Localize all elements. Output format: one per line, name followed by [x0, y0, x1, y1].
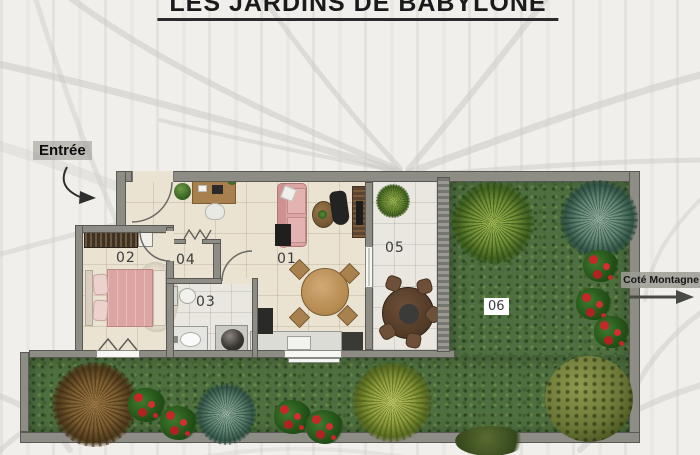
- mountain-side-label: Coté Montagne: [621, 272, 700, 288]
- bathroom-door-opening: [222, 278, 252, 284]
- potted-plant: [174, 183, 191, 200]
- wall-closet-right: [213, 239, 221, 283]
- bed: [85, 268, 167, 328]
- floor-plan-poster: LES JARDINS DE BABYLONE: [0, 0, 700, 455]
- room-label-06-garden: 06: [484, 298, 509, 315]
- wall-bath-right: [252, 278, 258, 358]
- terrace-sliding-door: [365, 246, 373, 288]
- wall-top: [172, 171, 640, 182]
- desk-papers: [198, 185, 207, 192]
- blue-palm: [196, 383, 256, 445]
- entrance-door-opening: [132, 171, 174, 182]
- bed-pillow: [92, 300, 108, 322]
- room-label-03-bathroom: 03: [196, 294, 216, 310]
- tv: [356, 201, 363, 225]
- garden-spiky-plant: [452, 182, 534, 264]
- living-window-sill: [288, 358, 340, 363]
- washing-machine: [215, 325, 248, 353]
- bed-pillow: [92, 274, 108, 296]
- room-label-01-living: 01: [277, 251, 297, 267]
- bottom-bush: [455, 426, 525, 455]
- wall-building-bottom: [29, 350, 455, 358]
- wall-left-garden: [20, 352, 29, 432]
- toilet: [171, 286, 197, 306]
- wall-terrace-screen: [437, 177, 450, 352]
- entry-cabinet: [138, 231, 153, 247]
- kitchen-stove: [342, 332, 363, 352]
- red-flowers: [306, 410, 344, 444]
- sink-basin: [180, 332, 201, 347]
- terrace-table-center: [399, 304, 419, 324]
- kitchen-tall-unit: [256, 308, 273, 334]
- red-flowers: [594, 316, 630, 348]
- brown-spiky-plant: [52, 362, 137, 447]
- living-window: [284, 350, 342, 358]
- desk: [192, 180, 236, 204]
- wall-bath-top: [166, 278, 222, 284]
- bed-blanket: [107, 269, 153, 327]
- room-label-02-bedroom: 02: [116, 250, 136, 266]
- red-flowers: [160, 406, 198, 440]
- coffee-table-plant: [318, 210, 327, 219]
- desk-chair: [205, 203, 225, 220]
- wall-bedroom-top: [75, 225, 174, 233]
- page-title: LES JARDINS DE BABYLONE: [157, 0, 558, 18]
- washing-machine-drum: [221, 329, 244, 351]
- olive-tree: [545, 356, 633, 442]
- room-label-04-closet: 04: [176, 252, 196, 268]
- wardrobe: [84, 231, 138, 248]
- page-title-text: LES JARDINS DE BABYLONE: [157, 0, 558, 21]
- wall-closet-top: [202, 239, 221, 244]
- room-label-05-terrace: 05: [385, 240, 405, 256]
- toilet-bowl: [179, 288, 196, 304]
- garden-blue-palm: [560, 180, 638, 258]
- terrace-plant: [376, 184, 410, 218]
- side-table-black: [275, 224, 291, 246]
- bedroom-door-opening: [166, 231, 174, 261]
- bedroom-window: [96, 350, 140, 358]
- bathroom-vanity: [170, 326, 208, 352]
- tv-console: [352, 186, 366, 238]
- kitchen-sink: [287, 336, 311, 350]
- red-flowers: [583, 250, 619, 282]
- wall-left-upper: [116, 171, 126, 233]
- yellow-palm: [352, 362, 432, 442]
- bed-sheet-fold: [153, 270, 166, 326]
- desk-laptop: [212, 185, 223, 194]
- entrance-label: Entrée: [33, 141, 92, 160]
- wall-left-lower: [75, 225, 83, 358]
